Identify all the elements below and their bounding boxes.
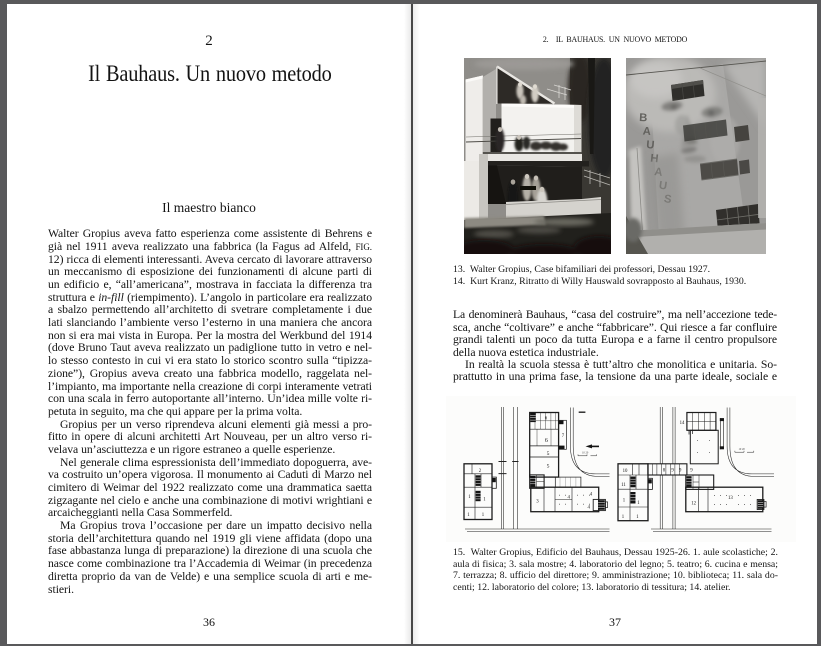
svg-text:13: 13 bbox=[728, 496, 733, 501]
svg-text:6: 6 bbox=[545, 438, 548, 444]
svg-text:5: 5 bbox=[547, 451, 550, 457]
svg-text:10 20: 10 20 bbox=[739, 448, 746, 451]
svg-text:5: 5 bbox=[547, 464, 550, 470]
svg-text:14: 14 bbox=[680, 421, 685, 426]
svg-text:U: U bbox=[646, 139, 655, 152]
svg-text:11: 11 bbox=[621, 483, 626, 488]
svg-text:10 20: 10 20 bbox=[582, 452, 589, 455]
svg-text:10: 10 bbox=[623, 469, 628, 474]
svg-text:12: 12 bbox=[691, 502, 696, 507]
svg-text:B: B bbox=[639, 112, 648, 124]
svg-text:A: A bbox=[642, 126, 651, 139]
